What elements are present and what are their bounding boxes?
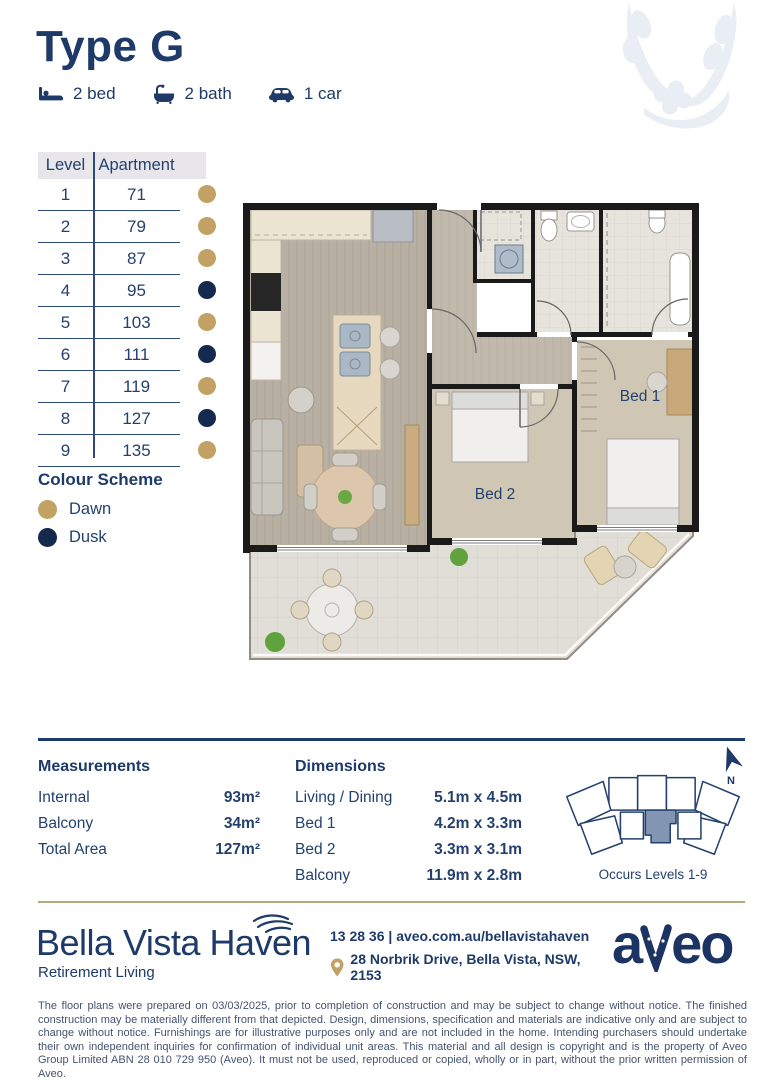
feature-beds: 2 bed xyxy=(38,84,116,104)
contact-block: 13 28 36 | aveo.com.au/bellavistahaven 2… xyxy=(330,928,605,983)
feature-beds-label: 2 bed xyxy=(73,84,116,104)
level-cell: 9 xyxy=(38,441,93,461)
dawn-dot xyxy=(38,500,57,519)
dimensions-block: Dimensions Living / Dining 5.1m x 4.5m B… xyxy=(295,758,522,889)
scheme-dot xyxy=(198,409,216,427)
aveo-leaf-v-icon xyxy=(639,924,673,972)
scheme-dot xyxy=(198,249,216,267)
apartment-cell: 79 xyxy=(93,217,180,237)
leaf-watermark xyxy=(584,0,764,160)
measurement-label: Balcony xyxy=(38,811,93,837)
table-row: 7 119 xyxy=(38,371,180,403)
dusk-label: Dusk xyxy=(69,528,107,547)
column-header-apartment: Apartment xyxy=(93,156,180,175)
scheme-dot xyxy=(198,345,216,363)
location-pin-icon xyxy=(330,957,344,978)
aveo-logo-eo: eo xyxy=(671,916,732,972)
dimension-row: Bed 2 3.3m x 3.1m xyxy=(295,837,522,863)
dimension-label: Bed 1 xyxy=(295,811,336,837)
apartment-cell: 111 xyxy=(93,345,180,365)
level-cell: 7 xyxy=(38,377,93,397)
floorplan-sheet: Type G 2 bed 2 bath xyxy=(0,0,764,1080)
dimension-row: Bed 1 4.2m x 3.3m xyxy=(295,811,522,837)
feature-baths-label: 2 bath xyxy=(185,84,232,104)
phone-url-line: 13 28 36 | aveo.com.au/bellavistahaven xyxy=(330,928,605,944)
dimension-value: 5.1m x 4.5m xyxy=(434,785,522,811)
car-icon xyxy=(268,85,295,103)
measurements-title: Measurements xyxy=(38,758,260,776)
level-cell: 8 xyxy=(38,409,93,429)
dimensions-title: Dimensions xyxy=(295,758,522,776)
table-row: 4 95 xyxy=(38,275,180,307)
measurement-label: Total Area xyxy=(38,837,107,863)
measurement-label: Internal xyxy=(38,785,90,811)
apartment-cell: 87 xyxy=(93,249,180,269)
table-column-divider xyxy=(93,152,95,458)
bed2-label: Bed 2 xyxy=(475,486,516,503)
divider-navy xyxy=(38,738,745,741)
site-plan-caption: Occurs Levels 1-9 xyxy=(557,867,749,882)
dimension-label: Bed 2 xyxy=(295,837,336,863)
dimension-row: Balcony 11.9m x 2.8m xyxy=(295,863,522,889)
level-cell: 1 xyxy=(38,185,93,205)
colour-scheme-title: Colour Scheme xyxy=(38,470,163,490)
aveo-logo-a: a xyxy=(612,916,641,972)
north-label: N xyxy=(716,775,746,787)
north-arrow-icon xyxy=(716,744,746,774)
bed-icon xyxy=(38,86,64,103)
scheme-dot xyxy=(198,441,216,459)
table-row: 8 127 xyxy=(38,403,180,435)
feature-cars-label: 1 car xyxy=(304,84,342,104)
level-cell: 6 xyxy=(38,345,93,365)
address-text: 28 Norbrik Drive, Bella Vista, NSW, 2153 xyxy=(350,951,605,983)
table-row: 2 79 xyxy=(38,211,180,243)
dimension-label: Living / Dining xyxy=(295,785,392,811)
measurement-value: 127m² xyxy=(215,837,260,863)
disclaimer-text: The floor plans were prepared on 03/03/2… xyxy=(38,1000,747,1080)
dawn-label: Dawn xyxy=(69,500,111,519)
address-line: 28 Norbrik Drive, Bella Vista, NSW, 2153 xyxy=(330,951,605,983)
table-row: 5 103 xyxy=(38,307,180,339)
feature-cars: 1 car xyxy=(268,84,342,104)
page-title: Type G xyxy=(36,22,185,72)
north-indicator: N xyxy=(716,744,746,787)
apartment-table-body: 1 71 2 79 3 87 4 95 5 103 xyxy=(38,179,206,467)
table-row: 1 71 xyxy=(38,179,180,211)
feature-baths: 2 bath xyxy=(152,84,232,104)
feature-row: 2 bed 2 bath 1 car xyxy=(38,84,342,104)
scheme-dot xyxy=(198,217,216,235)
legend-item-dawn: Dawn xyxy=(38,500,111,519)
apartment-table: Level Apartment 1 71 2 79 3 87 4 95 xyxy=(38,152,206,467)
level-cell: 3 xyxy=(38,249,93,269)
legend-item-dusk: Dusk xyxy=(38,528,107,547)
table-row: 3 87 xyxy=(38,243,180,275)
level-cell: 2 xyxy=(38,217,93,237)
dimension-value: 3.3m x 3.1m xyxy=(434,837,522,863)
divider-gold xyxy=(38,901,745,903)
dusk-dot xyxy=(38,528,57,547)
measurement-row: Total Area 127m² xyxy=(38,837,260,863)
scheme-dot xyxy=(198,313,216,331)
measurement-value: 93m² xyxy=(224,785,260,811)
measurement-row: Balcony 34m² xyxy=(38,811,260,837)
apartment-cell: 103 xyxy=(93,313,180,333)
scheme-dot xyxy=(198,281,216,299)
brand-name: Bella Vista Haven xyxy=(36,922,311,964)
bath-icon xyxy=(152,84,176,104)
scheme-dot xyxy=(198,185,216,203)
level-cell: 4 xyxy=(38,281,93,301)
dimension-row: Living / Dining 5.1m x 4.5m xyxy=(295,785,522,811)
measurement-value: 34m² xyxy=(224,811,260,837)
apartment-cell: 119 xyxy=(93,377,180,397)
table-row: 9 135 xyxy=(38,435,180,467)
brand-tagline: Retirement Living xyxy=(38,964,155,981)
apartment-cell: 95 xyxy=(93,281,180,301)
apartment-cell: 71 xyxy=(93,185,180,205)
bed1-label: Bed 1 xyxy=(620,388,661,405)
dimension-label: Balcony xyxy=(295,863,350,889)
dimension-value: 11.9m x 2.8m xyxy=(426,863,522,889)
measurement-row: Internal 93m² xyxy=(38,785,260,811)
scheme-dot xyxy=(198,377,216,395)
table-row: 6 111 xyxy=(38,339,180,371)
apartment-cell: 127 xyxy=(93,409,180,429)
floor-plan: Bed 1 Bed 2 xyxy=(237,197,707,675)
apartment-table-header: Level Apartment xyxy=(38,152,206,179)
level-cell: 5 xyxy=(38,313,93,333)
dimension-value: 4.2m x 3.3m xyxy=(434,811,522,837)
aveo-logo: a eo xyxy=(612,916,733,972)
column-header-level: Level xyxy=(38,156,93,175)
apartment-cell: 135 xyxy=(93,441,180,461)
measurements-block: Measurements Internal 93m² Balcony 34m² … xyxy=(38,758,260,863)
